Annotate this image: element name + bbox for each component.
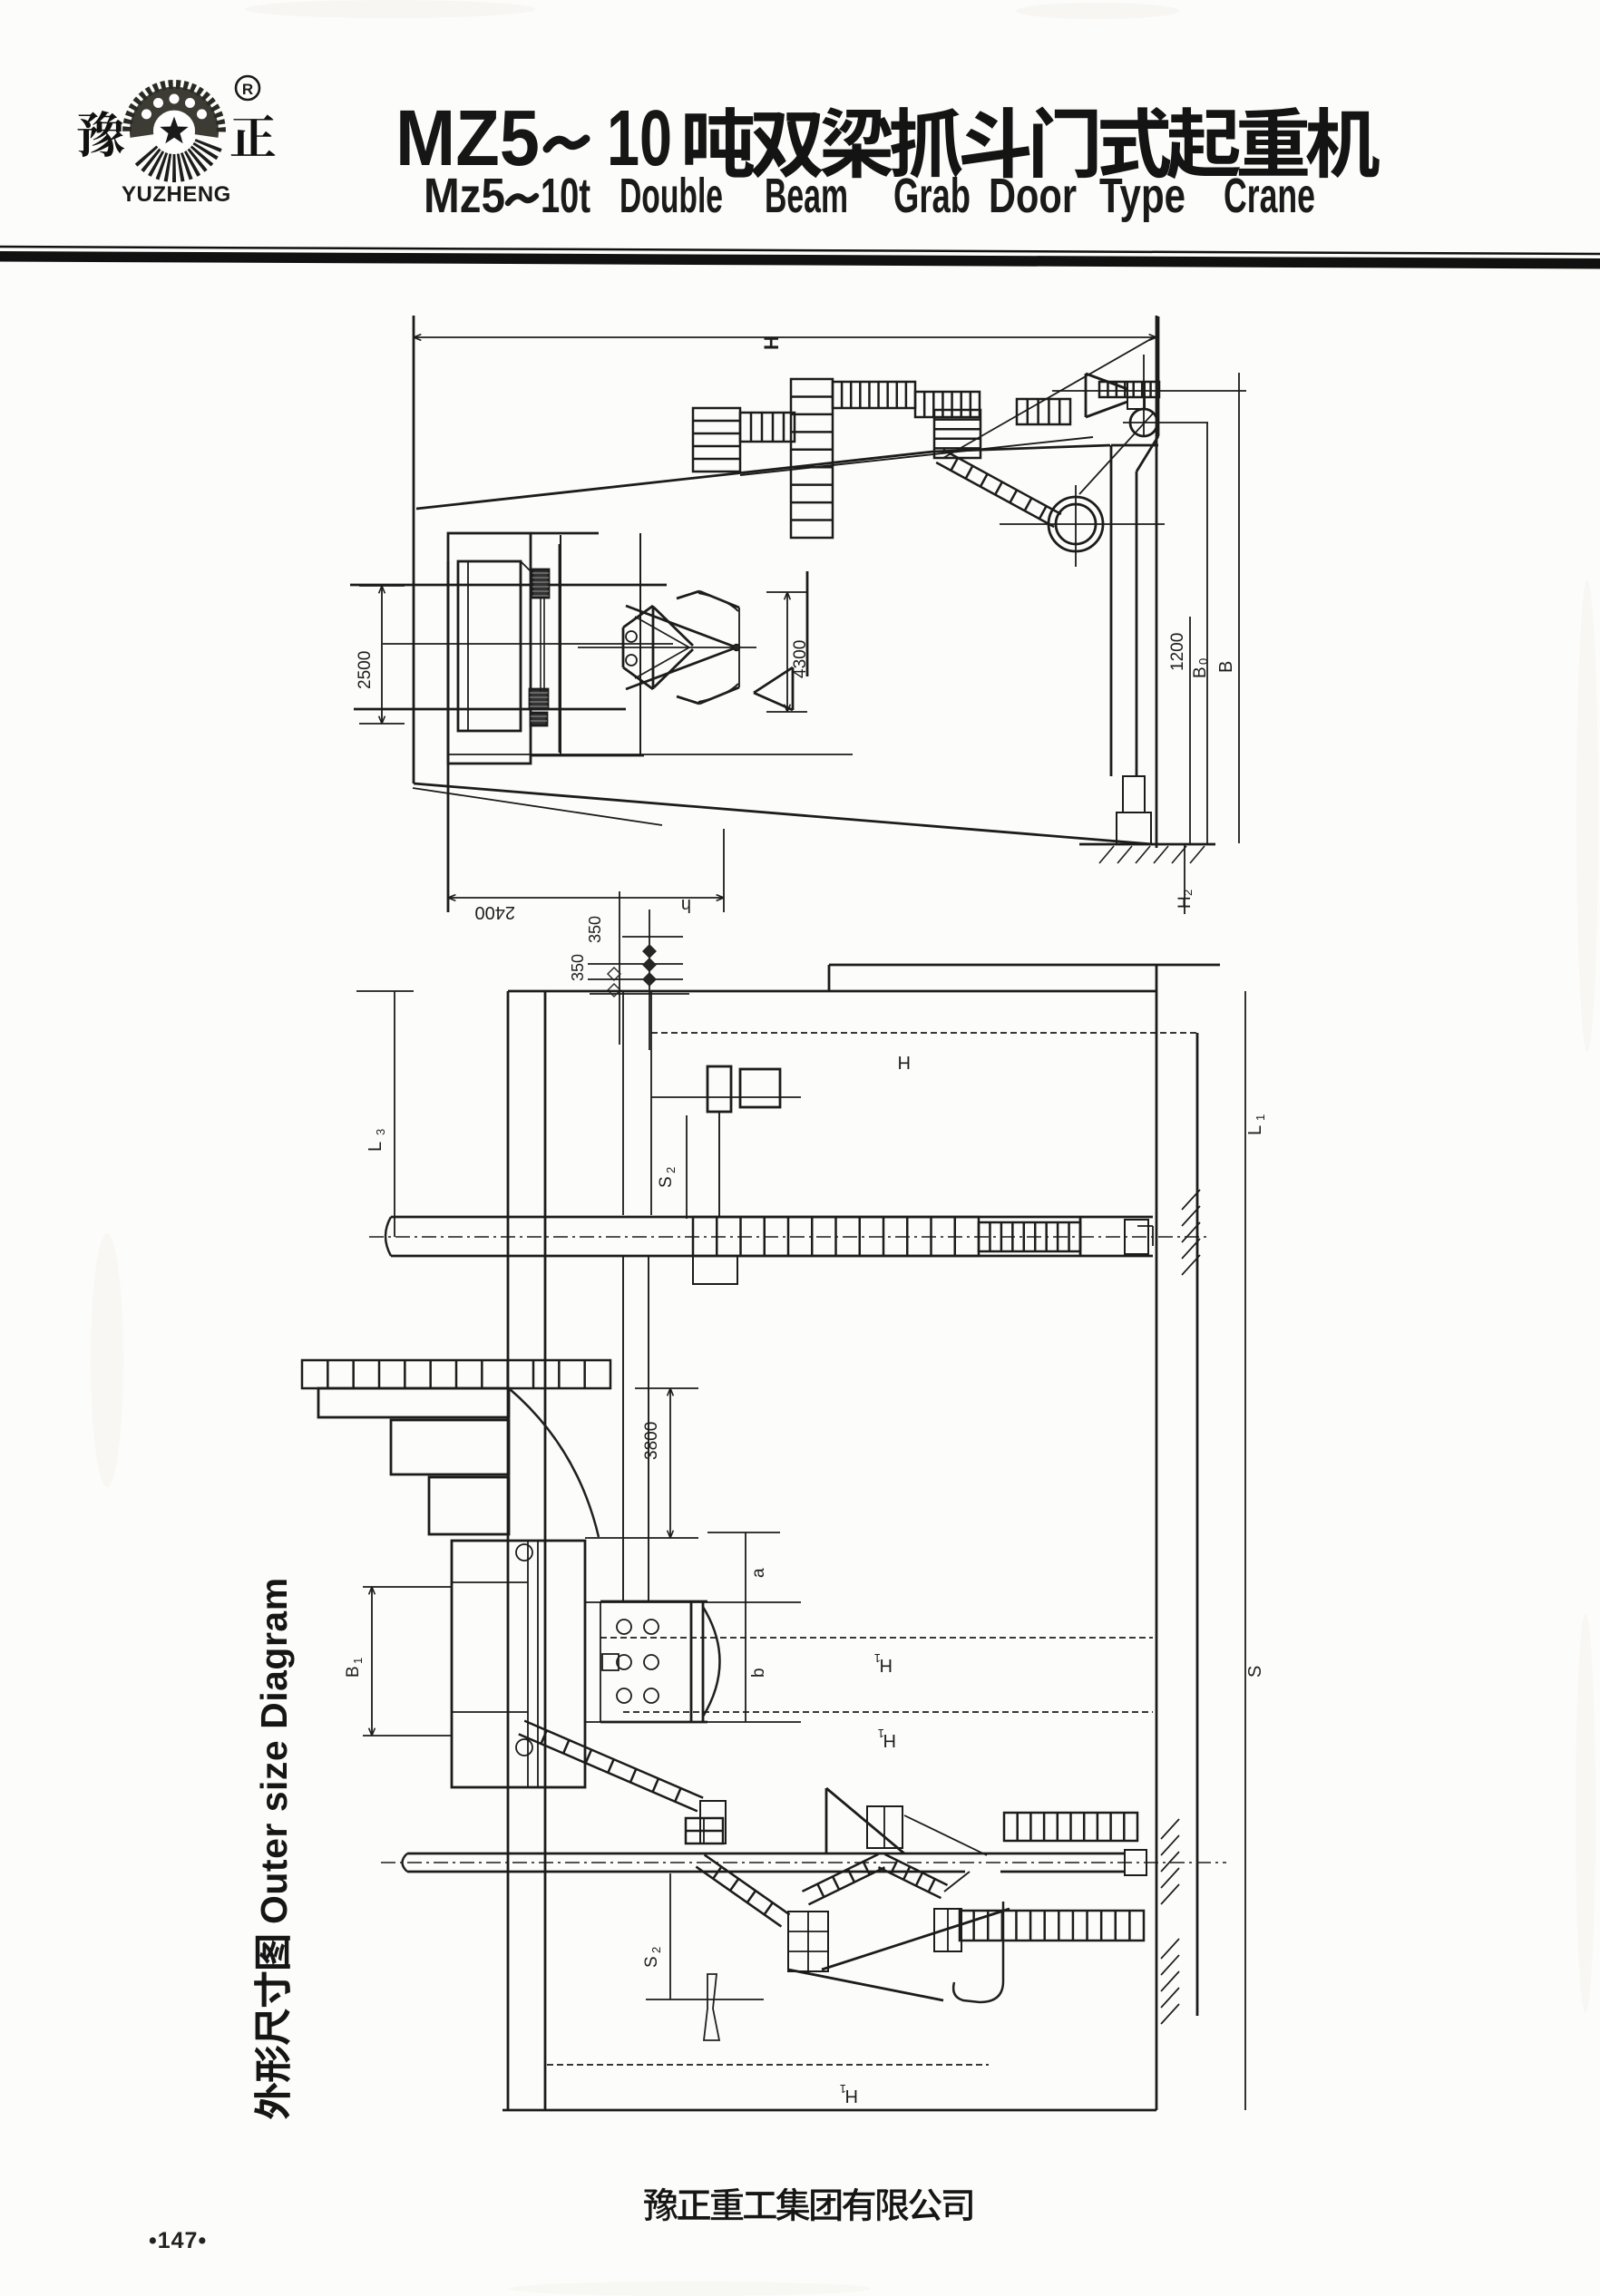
svg-text:Type: Type xyxy=(1099,169,1185,223)
svg-text:S: S xyxy=(1245,1666,1265,1678)
svg-text:350: 350 xyxy=(569,954,587,981)
svg-text:R: R xyxy=(242,81,253,98)
svg-text:B: B xyxy=(344,1666,363,1678)
svg-text:2400: 2400 xyxy=(475,902,516,922)
svg-text:3800: 3800 xyxy=(642,1422,661,1460)
svg-text:2500: 2500 xyxy=(356,651,375,689)
svg-text:B: B xyxy=(1216,661,1236,673)
svg-text:YUZHENG: YUZHENG xyxy=(122,182,231,207)
svg-text:H: H xyxy=(898,1052,911,1072)
svg-text:0: 0 xyxy=(1196,658,1210,665)
svg-text:L: L xyxy=(366,1142,385,1152)
svg-text:Crane: Crane xyxy=(1224,169,1315,223)
svg-text:L: L xyxy=(1245,1125,1265,1135)
svg-text:1: 1 xyxy=(1254,1114,1267,1121)
svg-text:1: 1 xyxy=(874,1651,881,1665)
svg-text:B: B xyxy=(1191,666,1210,678)
svg-text:H: H xyxy=(760,336,783,350)
svg-text:Mz5: Mz5 xyxy=(424,169,505,223)
svg-text:Grab: Grab xyxy=(893,169,971,223)
svg-text:S: S xyxy=(657,1176,676,1188)
svg-text:3: 3 xyxy=(374,1129,387,1135)
svg-text:1: 1 xyxy=(840,2082,846,2096)
svg-text:350: 350 xyxy=(586,916,604,943)
svg-text:2: 2 xyxy=(1181,890,1195,896)
svg-text:1200: 1200 xyxy=(1168,633,1187,671)
svg-text:Double: Double xyxy=(620,169,723,223)
svg-text:b: b xyxy=(749,1668,768,1678)
svg-text:•147•: •147• xyxy=(149,2228,207,2253)
svg-text:H: H xyxy=(1176,896,1195,909)
svg-text:S: S xyxy=(642,1956,661,1968)
svg-text:2: 2 xyxy=(649,1947,663,1953)
svg-text:Outer size Diagram: Outer size Diagram xyxy=(253,1577,295,1924)
svg-text:a: a xyxy=(749,1568,768,1578)
svg-text:1: 1 xyxy=(351,1658,365,1664)
svg-text:Beam: Beam xyxy=(765,169,848,223)
svg-text:2: 2 xyxy=(664,1167,678,1173)
svg-text:h: h xyxy=(681,895,691,915)
svg-text:1: 1 xyxy=(878,1727,884,1740)
svg-text:10t: 10t xyxy=(541,169,590,223)
svg-text:Door: Door xyxy=(989,169,1077,223)
